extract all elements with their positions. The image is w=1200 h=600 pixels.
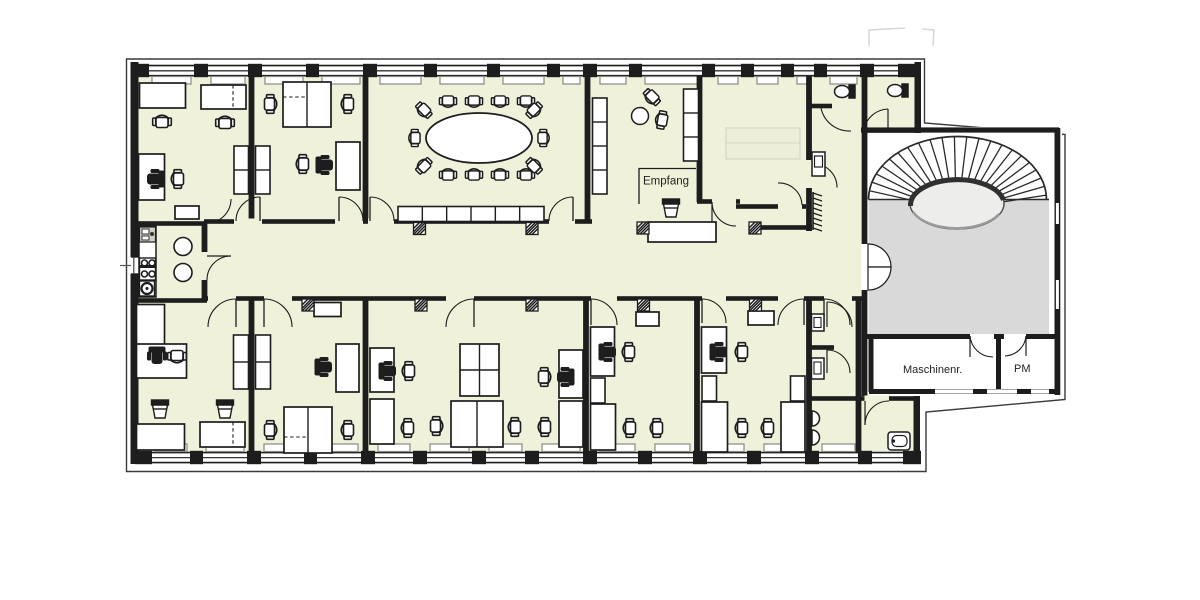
svg-text:PM: PM	[1014, 363, 1031, 375]
svg-text:Maschinenr.: Maschinenr.	[903, 364, 962, 376]
svg-text:Empfang: Empfang	[643, 176, 689, 188]
